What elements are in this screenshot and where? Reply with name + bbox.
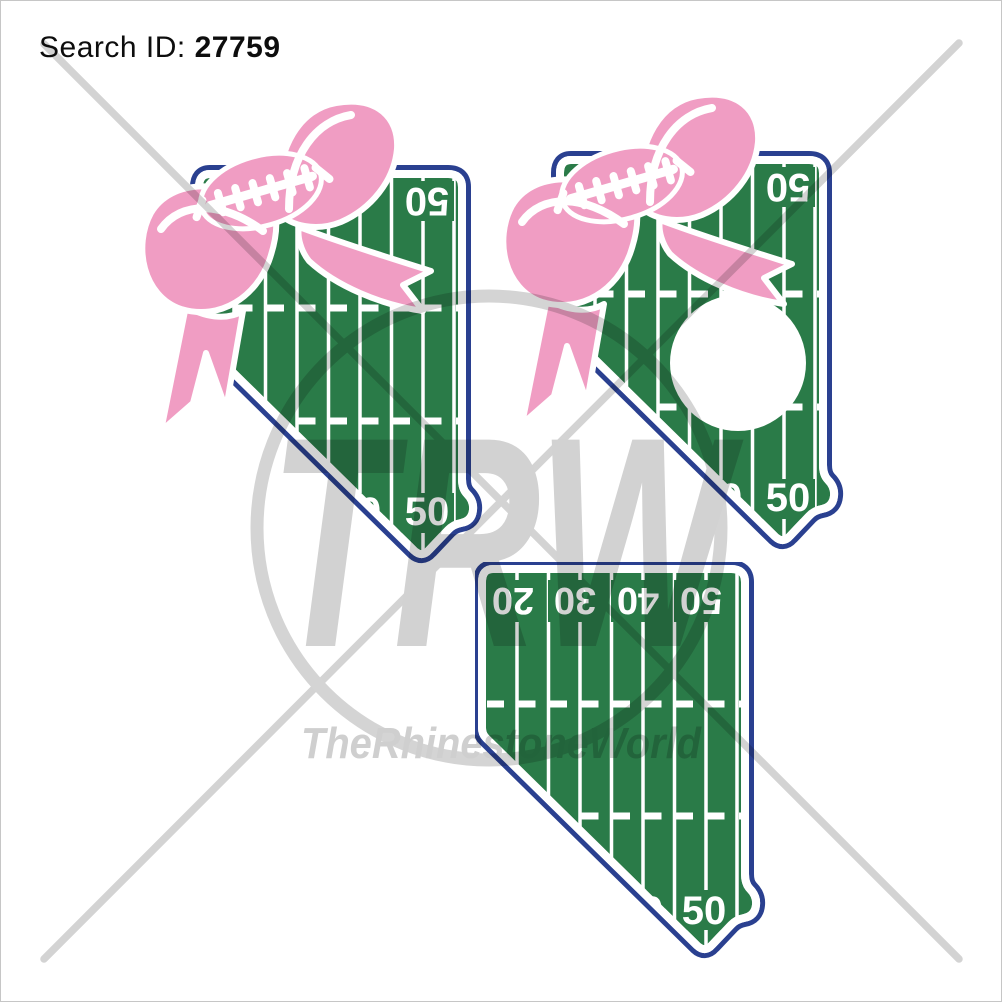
product-preview-canvas: Search ID: 27759 <box>0 0 1002 1002</box>
monogram-circle <box>670 295 806 431</box>
nevada-field: 20 30 40 50 50 40 <box>482 569 756 954</box>
bow-left-tail <box>522 299 604 424</box>
search-id-value: 27759 <box>195 31 281 64</box>
yard-number-top-reversed: 50 <box>766 165 811 209</box>
bow-left-tail <box>161 306 243 431</box>
search-id-label: Search ID: <box>39 31 186 64</box>
design-nevada-plain-field: 20 30 40 50 50 40 <box>475 562 775 967</box>
yard-number-bottom: 50 <box>766 476 811 520</box>
yard-number-top-reversed: 20 <box>492 579 534 621</box>
yard-number-top-reversed: 30 <box>554 579 596 621</box>
yard-number-top-reversed: 50 <box>405 179 450 223</box>
search-id: Search ID: 27759 <box>39 31 281 65</box>
yard-number-top-reversed: 40 <box>617 579 659 621</box>
yard-number-top-reversed: 50 <box>680 579 722 621</box>
design-nevada-bow-field: 50 50 40 <box>129 84 494 576</box>
yard-number-bottom: 50 <box>682 889 727 933</box>
yard-number-bottom: 50 <box>405 490 450 534</box>
design-nevada-bow-monogram-field: 50 50 40 <box>490 81 855 573</box>
